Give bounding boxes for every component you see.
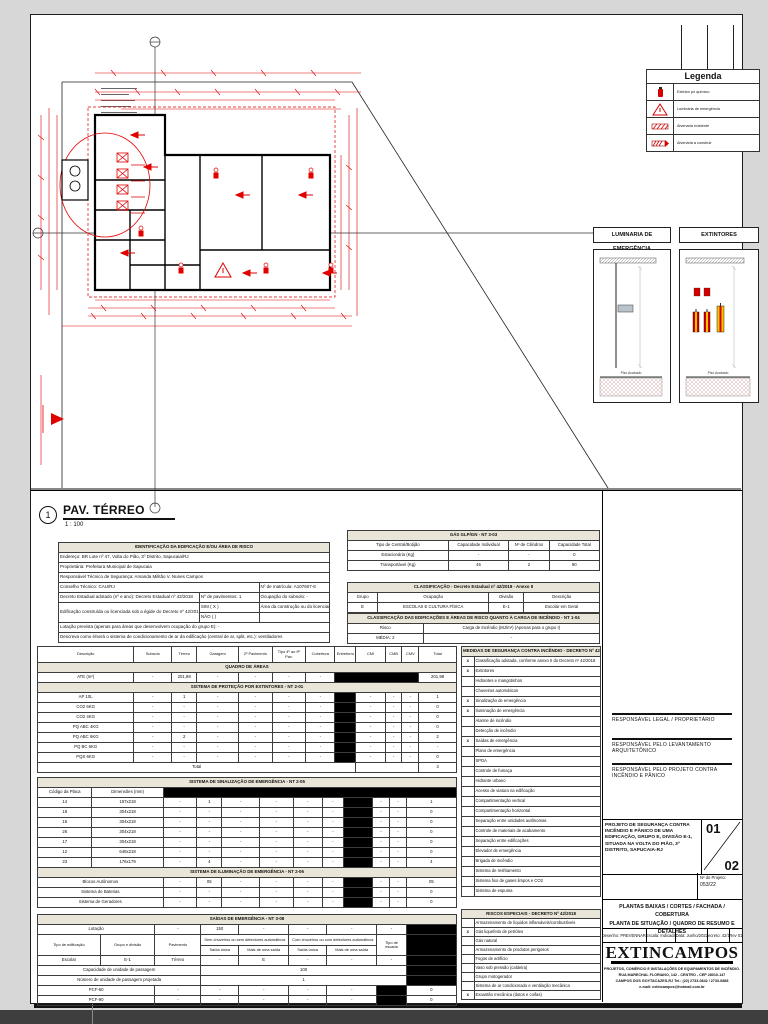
table-cell: 0 [406,996,456,1006]
table: SISTEMA DE SINALIZAÇÃO DE EMERGÊNCIA - N… [37,777,457,868]
table-cell: - [172,723,197,733]
table-cell: - [322,828,343,838]
table-cell: Nº de Cilindros [509,541,549,551]
table-cell: Térreo [155,956,201,966]
table-cell: - [260,798,294,808]
table-cell: - [197,838,222,848]
table-cell: SIM ( X ) [199,603,259,613]
table-cell: Proprietária: Prefeitura Municipal de Sa… [59,563,330,573]
table-cell: Extintores [474,667,601,677]
table-cell: 1 [197,798,222,808]
drawing-revision: Rev 01 [730,929,742,942]
table-cell: - [197,888,222,898]
table-cell: - [373,848,390,858]
table-cell: NÃO ( ) [199,613,259,623]
table-cell: - [222,898,260,908]
table-cell: - [322,888,343,898]
table-cell: Risco [348,624,424,634]
table-cell: - [222,798,260,808]
table-cell: CMB [385,647,402,663]
areas-extinguishers-table: DescriçãoSubsoloTérreoGaragem2º Paviment… [37,646,457,773]
project-number-box: Nº do Projeto: 053/22 [697,873,742,899]
table-cell: - [389,808,406,818]
table-cell: - [222,888,260,898]
table-cell: Código da Placa [38,788,92,798]
table-cell [462,946,475,955]
table-cell: - [402,723,419,733]
table-cell: CMV [402,647,419,663]
table-cell: - [327,986,377,996]
table-cell: - [197,818,222,828]
drawing-author: Desenho: PREVENNAR [602,929,647,942]
signage-table: SISTEMA DE SINALIZAÇÃO DE EMERGÊNCIA - N… [37,777,457,868]
table-cell: Mais de uma saída [239,946,289,956]
table-cell: - [322,878,343,888]
table-cell: Controle de fumaça [474,767,601,777]
legend-item: Luminária de emergência [647,101,759,118]
table-cell: - [306,713,335,723]
table-cell [343,858,372,868]
table-cell [406,966,456,976]
table-cell: 2 [172,733,197,743]
table-cell [343,878,372,888]
table-cell: - [260,838,294,848]
table-cell: - [322,818,343,828]
table: MEDIDAS DE SEGURANÇA CONTRA INCÊNDIO - D… [461,646,601,897]
table-cell: E [348,603,378,613]
table-cell [343,818,372,828]
table-cell: - [239,713,273,723]
table-cell: - [163,808,197,818]
table-cell [343,838,372,848]
legend-leader-line [707,25,708,69]
table-cell: Grupo motogerador [474,973,601,982]
table-cell: - [448,551,508,561]
table-cell: Edificação construída ou licenciada sob … [59,603,200,623]
fold-mark [92,1004,93,1024]
table-cell: Sinalização de emergência [474,697,601,707]
table: IDENTIFICAÇÃO DA EDIFICAÇÃO E/OU ÁREA DE… [58,542,330,643]
emergency-light-detail-title: LUMINARIA DE EMERGÊNCIA [593,227,671,243]
table-cell: x [462,991,475,1000]
table-cell: - [389,888,406,898]
table-cell: - [402,753,419,763]
table-cell: - [289,986,327,996]
table-cell: - [306,703,335,713]
company-line-3: CAMPOS DOS GOYTACAZES-RJ Tel.: (22) 2733… [602,979,742,985]
extinguishers-detail-title: EXTINTORES [679,227,759,243]
table-cell: - [163,798,197,808]
table-cell: Acesso de viatura na edificação [474,787,601,797]
table-cell: PQ BC 6KG [38,743,134,753]
table-cell: 3 [419,763,457,773]
table-cell: x [462,657,475,667]
table-cell: - [402,713,419,723]
classification-table: CLASSIFICAÇÃO - Decreto Estadual nº 42/2… [347,582,600,613]
table-cell: 648x218 [92,848,163,858]
table-cell: 14 [38,798,92,808]
table-cell [462,857,475,867]
table-cell: - [402,693,419,703]
table-section-header: SAÍDAS DE EMERGÊNCIA - NT 3-08 [38,915,457,925]
legend-item-label: Extintor pó químico [674,84,759,100]
table-cell: CMI [356,647,385,663]
table-cell: 90 [549,561,599,571]
table-cell [406,956,456,966]
table-cell: - [322,838,343,848]
table-cell: - [402,743,419,753]
table-cell: Responsável Técnico de Segurança: Amanda… [59,573,330,583]
table-cell: - [293,818,322,828]
table-cell: Total [419,647,457,663]
table-cell: - [197,673,239,683]
table-cell [462,727,475,737]
table-cell [462,777,475,787]
table-cell: - [389,798,406,808]
table-cell: - [272,753,306,763]
table-cell [462,937,475,946]
table-cell: x [462,737,475,747]
table-cell: - [306,693,335,703]
project-description: PROJETO DE SEGURANÇA CONTRA INCÊNDIO E P… [602,820,701,874]
table-cell [462,767,475,777]
table-cell: Controle de materiais de acabamento [474,827,601,837]
table-cell: - [163,838,197,848]
table-cell: - [260,848,294,858]
table-section-header: QUADRO DE ÁREAS [38,663,457,673]
table-cell: - [260,898,294,908]
table-cell: Subsolo [134,647,172,663]
masonry-hatch-icon [647,118,674,134]
table-cell: - [134,673,172,683]
drawing-decree: Decreto: 42/18 [708,929,729,942]
table-cell: 1 [406,798,456,808]
table-section-header: SISTEMA DE PROTEÇÃO POR EXTINTORES - NT … [38,683,457,693]
table-cell: - [222,818,260,828]
legend-item-label: Alvenaria a construir [674,135,759,151]
table-cell: 304x218 [92,828,163,838]
legend-leader-line [733,25,734,69]
table-cell: 0 [419,713,457,723]
table-cell: - [260,858,294,868]
table-cell: Mais de uma saída [327,946,377,956]
table-cell: PQ ABC 6KG [38,733,134,743]
table-cell: - [373,878,390,888]
table-cell [462,964,475,973]
table-cell: 0 [419,723,457,733]
table-cell: - [306,753,335,763]
table-cell: - [163,878,197,888]
table-cell: x [462,707,475,717]
drawing-info-row: Desenho: PREVENNAR Escala: Indicada Data… [602,929,742,943]
table-cell: - [356,753,385,763]
table-cell [377,996,406,1006]
table-cell: - [385,743,402,753]
table-cell: Saída única [201,946,239,956]
plan-scale: 1 : 100 [65,522,83,528]
table-cell: 304x218 [92,818,163,828]
table-cell [462,787,475,797]
table-cell: Dimensões (mm) [92,788,163,798]
table-cell: - [293,848,322,858]
table-cell: 0 [406,848,456,858]
table-cell: - [327,956,377,966]
table-cell: - [155,925,201,935]
table-cell: SPDA [474,757,601,767]
table-cell: Iluminação de emergência [474,707,601,717]
table-cell: - [289,956,327,966]
project-number-label: Nº do Projeto: [700,875,740,880]
table-cell: - [293,828,322,838]
table-cell: - [272,693,306,703]
legend-item-label: Alvenaria existente [674,118,759,134]
table-cell: 05 [406,878,456,888]
sheet-total: 02 [725,858,739,873]
table-cell: 0 [406,828,456,838]
table-cell: 0 [406,986,456,996]
table-cell: - [272,703,306,713]
project-number-row: Nº do Projeto: 053/22 [602,873,742,900]
table-cell: - [222,808,260,818]
table: GÁS GLP/GN - NT 3-03Tipo de Central/Boti… [347,530,600,571]
table-cell: Classificação adotada, conforme anexo II… [474,657,601,667]
table-cell: 201,98 [419,673,457,683]
table-cell [406,935,456,956]
table-cell: Blocos Autônomos [38,878,164,888]
table-cell: - [385,733,402,743]
table-cell: Entreforro [335,647,356,663]
table-cell: PQS 6KG [38,753,134,763]
table-cell: E [239,956,289,966]
table-cell: Tipo de edificação [38,935,101,956]
table-cell: Nº de pavimentos: 1 [199,593,259,603]
table-cell: AP 10L [38,693,134,703]
table-cell [343,808,372,818]
table-cell [343,888,372,898]
table-cell: Grupo [348,593,378,603]
table-cell: 157x218 [92,798,163,808]
table-cell: - [373,898,390,908]
table-cell: - [260,888,294,898]
legend-box: Legenda Extintor pó químico Luminária de… [646,69,760,152]
sheet-number: 01 [706,821,720,836]
table-cell: Chuveiros automáticos [474,687,601,697]
table-cell: - [356,723,385,733]
table-cell: Sistema de ar condicionado e ventilação … [474,982,601,991]
table-cell: Fogos de artifício [474,955,601,964]
table-cell: - [289,925,327,935]
table-cell: 0 [419,753,457,763]
table-cell: 12 [38,848,92,858]
table-cell: - [373,808,390,818]
table-cell: - [373,818,390,828]
table-section-header: SISTEMA DE SINALIZAÇÃO DE EMERGÊNCIA - N… [38,778,457,788]
table-cell [259,613,329,623]
table-cell: 0 [406,838,456,848]
table-cell [462,797,475,807]
table-section-header: CLASSIFICAÇÃO - Decreto Estadual nº 42/2… [348,583,600,593]
table-cell: Capacidade Total [549,541,599,551]
table-cell: - [239,996,289,1006]
table-cell: Sistema de espuma [474,887,601,897]
table-cell: Elevador de emergência [474,847,601,857]
table-cell: Lotação [38,925,155,935]
table-cell: - [163,898,197,908]
table-cell: Estacionária (Kg) [348,551,449,561]
table-cell: - [201,986,239,996]
sheet-contents-box: PLANTAS BAIXAS / CORTES / FACHADA / COBE… [602,899,742,929]
table-cell [163,788,456,798]
table-cell: Térreo [172,647,197,663]
table-cell: - [389,878,406,888]
table-cell: 0 [549,551,599,561]
table-cell: - [356,733,385,743]
table-cell: Gás liquefeito de petróleo [474,928,601,937]
table-cell: 2 [419,733,457,743]
company-email: e-mail: extincampos@hotmail.com.br [602,985,742,991]
table-cell: - [373,858,390,868]
table-cell: 150 [201,925,239,935]
table-cell: - [385,753,402,763]
table-cell: Conselho Técnico: CAU/RJ [59,583,260,593]
table-section-header: GÁS GLP/GN - NT 3-03 [348,531,600,541]
responsible-legal-label: RESPONSÁVEL LEGAL / PROPRIETÁRIO [612,717,715,723]
table-cell: Sistema de Geradores [38,898,164,908]
table-cell [406,925,456,935]
table-cell: - [327,996,377,1006]
table-cell: 0 [406,888,456,898]
table-cell: - [419,743,457,753]
table-cell: - [201,956,239,966]
table-cell: - [197,713,239,723]
table-cell: - [389,818,406,828]
table-cell [462,982,475,991]
table-cell [462,919,475,928]
table-cell: - [134,723,172,733]
table-cell: 304x218 [92,808,163,818]
table-cell: 18 [38,808,92,818]
table-cell: 4 [197,858,222,868]
table-cell [335,713,356,723]
table-cell: - [172,703,197,713]
table-cell: - [509,551,549,561]
table-section-header: RISCOS ESPECIAIS - DECRETO Nº 42/2018 [462,910,601,919]
table-cell: - [356,693,385,703]
table-cell [462,973,475,982]
table-cell: - [222,838,260,848]
table-cell: E-1 [489,603,524,613]
table-cell: - [239,925,289,935]
responsible-project-label: RESPONSÁVEL PELO PROJETO CONTRA INCÊNDIO… [612,767,717,779]
table-cell: - [373,798,390,808]
table-cell: - [356,743,385,753]
drawing-table-divider [31,490,742,491]
table-cell: - [239,743,273,753]
table-cell: Detecção de incêndio [474,727,601,737]
table-cell: 1 [172,693,197,703]
table-cell: - [289,996,327,1006]
table-cell: - [134,733,172,743]
table-cell: ATE (m²) [38,673,134,683]
table-cell: - [322,798,343,808]
table-cell: - [197,703,239,713]
table-cell: - [402,703,419,713]
table-cell: - [172,753,197,763]
responsible-project-line: RESPONSÁVEL PELO PROJETO CONTRA INCÊNDIO… [612,763,732,779]
table-cell [343,798,372,808]
table-cell: Saídas de emergência [474,737,601,747]
table-cell: Tipo 4º ao 9º Pav. [272,647,306,663]
table-cell [343,898,372,908]
table-cell: Brigada de incêndio [474,857,601,867]
table-cell: Plano de emergência [474,747,601,757]
table-cell: PCF-60 [38,986,155,996]
table-cell: 4 [406,858,456,868]
table-cell: - [385,693,402,703]
table-cell: - [260,808,294,818]
table-cell [462,955,475,964]
table-cell: Com chuveiros ou com detectores automáti… [289,935,377,946]
table-cell: - [306,673,335,683]
table-cell: - [272,723,306,733]
table-cell: Sistema de Baterias [38,888,164,898]
table-cell [335,693,356,703]
extinguisher-sign-plate [694,288,700,296]
table-cell: MÉDIA: 2 [348,634,424,644]
table-cell: - [163,828,197,838]
table-cell [462,807,475,817]
table-cell: - [373,888,390,898]
table-cell: - [134,713,172,723]
company-line-2: RUA MARECHAL FLORIANO, 142 - CENTRO - CE… [602,973,742,979]
table-cell: - [272,743,306,753]
table-cell: 100 [201,966,406,976]
project-number: 053/22 [700,882,740,888]
table-cell: Escolar [38,956,101,966]
table-cell: PQ ABC 4KG [38,723,134,733]
table-cell [462,827,475,837]
table-cell: 176x179 [92,858,163,868]
extinguishers-detail: Piso Acabado [679,249,759,403]
plan-title: PAV. TÉRREO [63,503,145,517]
table-cell: - [260,818,294,828]
identification-table: IDENTIFICAÇÃO DA EDIFICAÇÃO E/OU ÁREA DE… [58,542,330,643]
table-cell: - [389,858,406,868]
table-cell: - [385,713,402,723]
table-cell [343,828,372,838]
table-cell: - [197,808,222,818]
masonry-arrow-icon [647,135,674,151]
table-cell: PCF-90 [38,996,155,1006]
emergency-exits-table: SAÍDAS DE EMERGÊNCIA - NT 3-08Lotação-15… [37,914,457,1006]
table-cell [462,867,475,877]
table-cell: - [197,723,239,733]
table-cell: Saída única [289,946,327,956]
table-cell [335,723,356,733]
table-cell: Ocupação [378,593,489,603]
table-cell: Grupo e divisão [100,935,154,956]
table: CLASSIFICAÇÃO - Decreto Estadual nº 42/2… [347,582,600,613]
table-cell: - [356,713,385,723]
table: CLASSIFICAÇÃO DAS EDIFICAÇÕES E ÁREAS DE… [347,613,600,644]
table-cell: - [222,858,260,868]
table-cell: Escolar em Geral [524,603,600,613]
table-cell: - [155,996,201,1006]
table-cell [335,753,356,763]
table-cell: Nº de matrícula: A107607-8 [259,583,329,593]
table-cell: Alarme de incêndio [474,717,601,727]
table-cell: Armazenamento de produtos perigosos [474,946,601,955]
